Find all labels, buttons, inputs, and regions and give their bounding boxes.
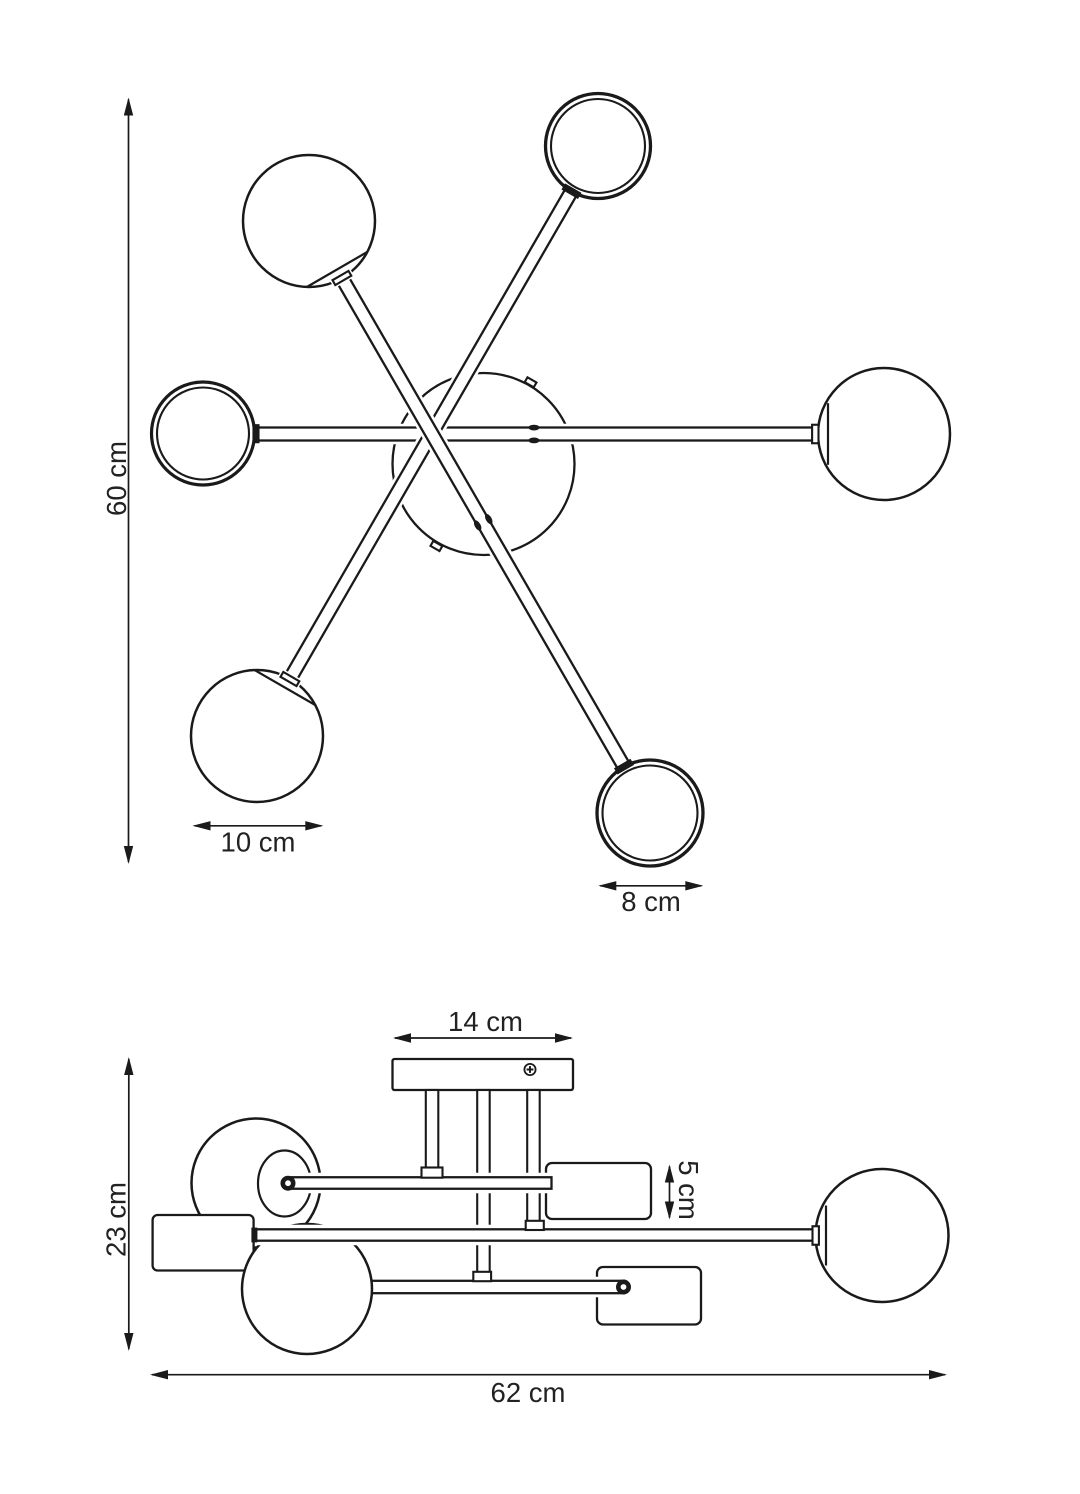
svg-text:8 cm: 8 cm	[621, 886, 681, 917]
svg-text:14 cm: 14 cm	[448, 1006, 523, 1037]
svg-text:10 cm: 10 cm	[221, 827, 296, 858]
svg-text:5 cm: 5 cm	[673, 1160, 704, 1220]
svg-text:62 cm: 62 cm	[491, 1377, 566, 1408]
svg-text:60 cm: 60 cm	[101, 441, 132, 516]
svg-text:23 cm: 23 cm	[101, 1182, 132, 1257]
